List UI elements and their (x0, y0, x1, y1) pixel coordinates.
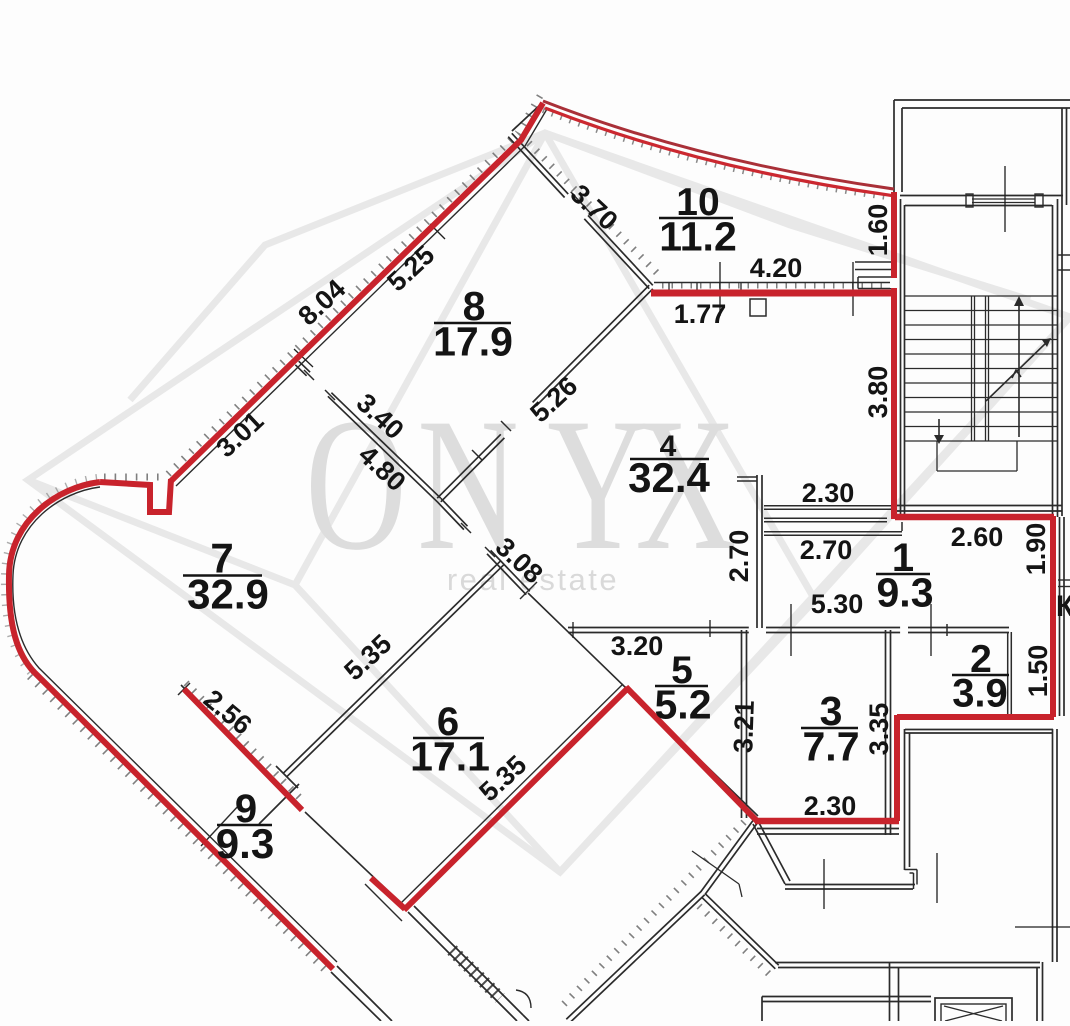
svg-text:9.3: 9.3 (216, 820, 274, 867)
svg-text:5.2: 5.2 (655, 681, 712, 727)
svg-text:1.77: 1.77 (674, 299, 727, 329)
svg-text:2.60: 2.60 (951, 522, 1004, 552)
svg-text:3.21: 3.21 (728, 700, 760, 754)
svg-text:17.1: 17.1 (410, 733, 490, 779)
svg-text:4.20: 4.20 (750, 253, 803, 283)
svg-text:5.30: 5.30 (811, 589, 864, 619)
svg-text:К: К (1056, 590, 1070, 623)
svg-text:2.30: 2.30 (804, 791, 857, 821)
svg-text:3.35: 3.35 (864, 703, 894, 756)
svg-text:11.2: 11.2 (659, 213, 737, 259)
svg-text:1.90: 1.90 (1021, 523, 1051, 576)
svg-text:17.9: 17.9 (433, 318, 513, 364)
svg-text:9.3: 9.3 (877, 569, 934, 615)
svg-text:3.80: 3.80 (863, 366, 893, 419)
svg-text:2.70: 2.70 (800, 535, 853, 565)
svg-text:7.7: 7.7 (803, 723, 860, 769)
svg-text:2.70: 2.70 (724, 530, 754, 583)
svg-text:32.4: 32.4 (628, 454, 710, 501)
svg-text:2.30: 2.30 (802, 478, 855, 508)
svg-text:1.60: 1.60 (863, 204, 893, 257)
svg-text:3.20: 3.20 (611, 631, 664, 661)
svg-text:3.9: 3.9 (952, 672, 1008, 716)
svg-text:32.9: 32.9 (187, 571, 269, 618)
svg-text:1.50: 1.50 (1023, 645, 1053, 698)
